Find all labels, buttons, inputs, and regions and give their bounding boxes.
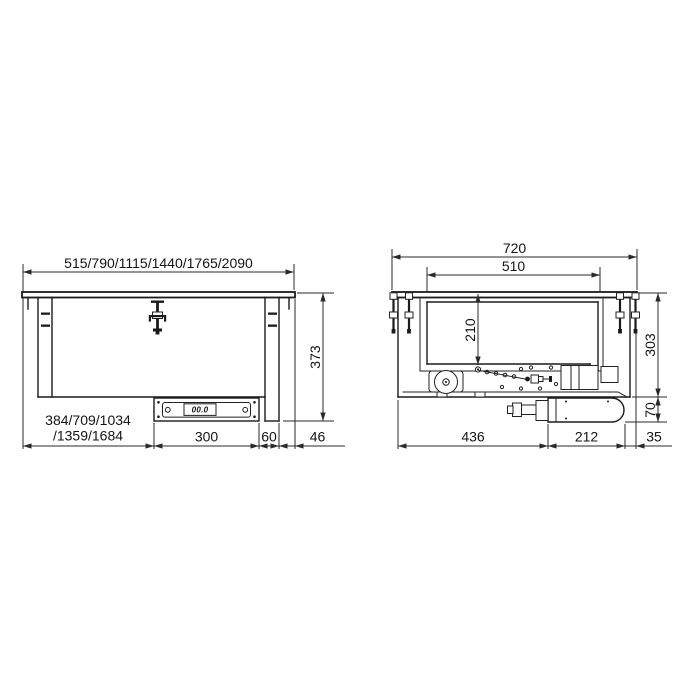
dim-front-depth-label: 373	[307, 345, 323, 369]
motor-screw	[565, 401, 567, 403]
junction-box	[601, 367, 618, 383]
panel-screw	[157, 415, 160, 418]
dim-well-depth-label: 210	[462, 318, 478, 342]
side-flange	[392, 292, 637, 298]
control-panel: 00.0	[154, 398, 259, 421]
panel-screw	[157, 401, 160, 404]
front-flange	[22, 292, 295, 298]
dim-panel-offset-label: 60	[261, 429, 277, 445]
panel-screw	[253, 401, 256, 404]
motor-bracket	[536, 401, 548, 421]
page-background	[0, 0, 700, 700]
dim-side-overall-depth-label: 720	[503, 240, 527, 256]
dim-panel-width-label: 300	[195, 429, 219, 445]
display-value: 00.0	[192, 406, 209, 415]
motor-screw	[607, 401, 609, 403]
dim-motor-height-label: 70	[642, 402, 658, 418]
technical-drawing-page: 00.0 515/790/1115/1440/1765/2090 384/709…	[0, 0, 700, 700]
dim-cutout-width-label-1: 384/709/1034	[45, 412, 131, 428]
panel-screw	[253, 415, 256, 418]
dim-flange-overhang-label: 46	[310, 429, 326, 445]
dim-front-section-label: 436	[461, 429, 485, 445]
dim-cutout-width-label-2: /1359/1684	[53, 428, 123, 444]
fan-center	[445, 381, 447, 383]
dim-rear-overhang-label: 35	[646, 429, 662, 445]
dim-body-height-label: 303	[642, 333, 658, 357]
dim-well-opening-label: 510	[502, 258, 526, 274]
dim-front-overall-width-label: 515/790/1115/1440/1765/2090	[64, 255, 253, 271]
motor-screw	[565, 418, 567, 420]
dim-motor-section-label: 212	[575, 429, 599, 445]
support-foot	[475, 392, 485, 397]
technical-drawing: 00.0 515/790/1115/1440/1765/2090 384/709…	[0, 0, 700, 700]
